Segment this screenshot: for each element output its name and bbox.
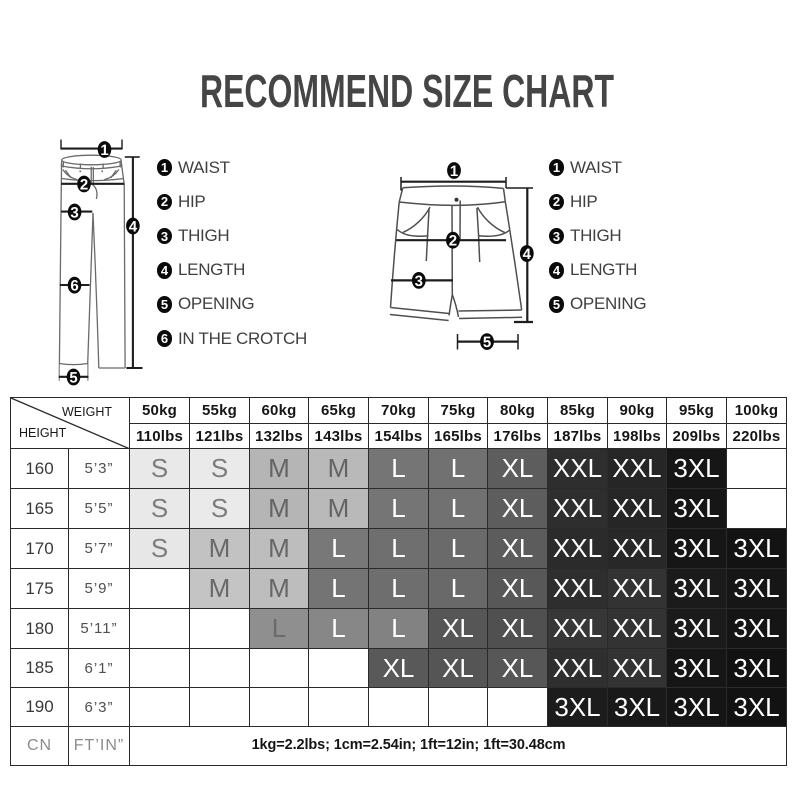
- svg-text:6: 6: [70, 278, 78, 295]
- svg-text:3: 3: [70, 204, 78, 221]
- svg-text:3: 3: [415, 273, 423, 290]
- svg-text:5: 5: [483, 334, 491, 351]
- svg-text:1: 1: [450, 163, 458, 180]
- svg-text:4: 4: [523, 246, 532, 263]
- svg-text:5: 5: [69, 369, 77, 386]
- svg-text:2: 2: [80, 176, 88, 193]
- svg-text:4: 4: [129, 218, 138, 235]
- svg-text:2: 2: [449, 233, 457, 250]
- svg-text:1: 1: [100, 142, 108, 159]
